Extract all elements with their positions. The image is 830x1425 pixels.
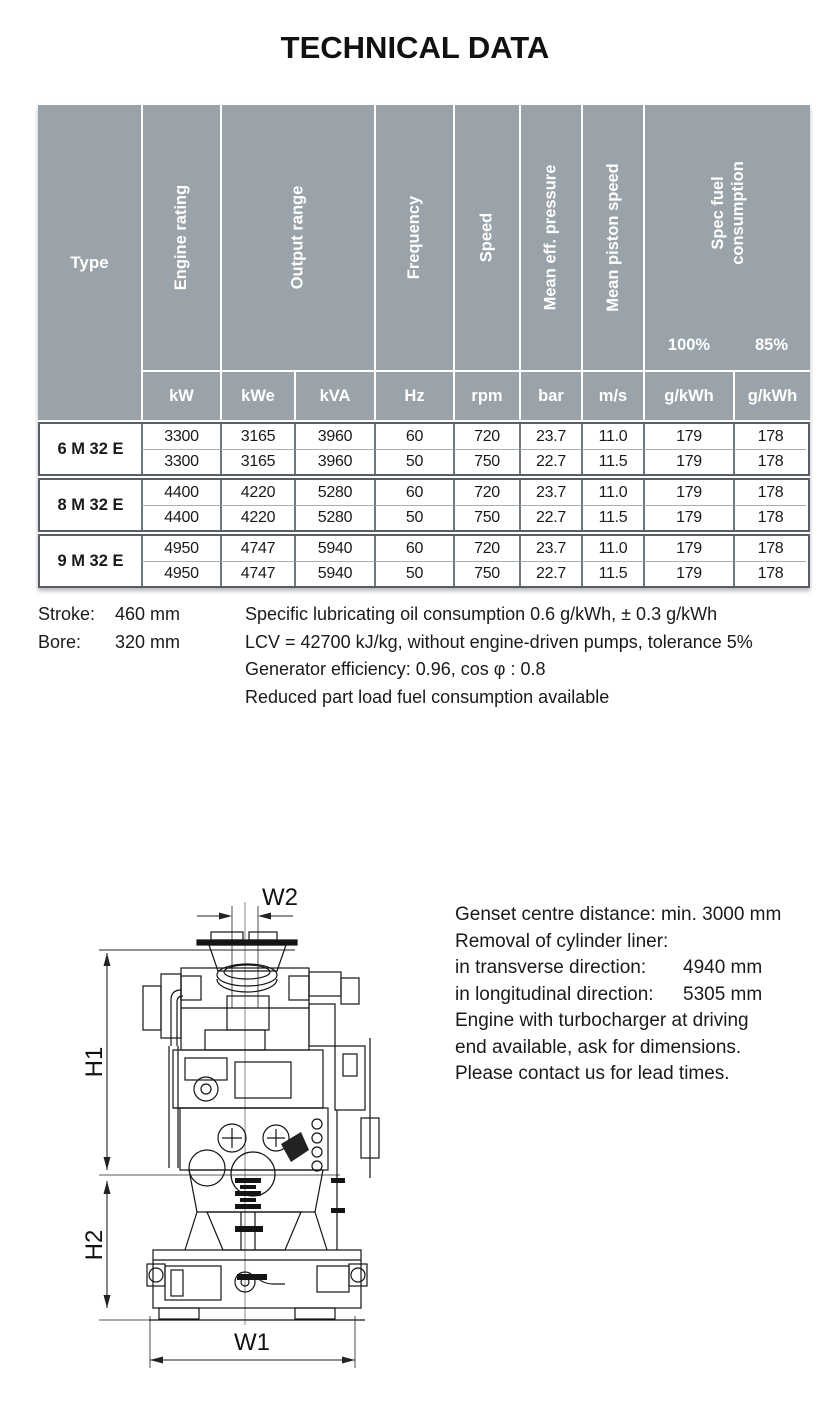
unit-bar: bar bbox=[519, 370, 581, 420]
value-cell: 3300 bbox=[141, 449, 220, 474]
value-cell: 50 bbox=[374, 561, 453, 586]
table-header: Type Engine rating Output range Frequenc… bbox=[38, 105, 810, 420]
column-header-frequency: Frequency bbox=[374, 105, 453, 370]
dimension-label-h2: H2 bbox=[85, 1230, 108, 1261]
note-line: Reduced part load fuel consumption avail… bbox=[245, 684, 753, 712]
value-cell: 720 bbox=[453, 480, 519, 505]
value-cell: 720 bbox=[453, 424, 519, 449]
unit-rpm: rpm bbox=[453, 370, 519, 420]
value-cell: 60 bbox=[374, 480, 453, 505]
value-cell: 22.7 bbox=[519, 449, 581, 474]
value-cell: 11.0 bbox=[581, 536, 643, 561]
unit-ms: m/s bbox=[581, 370, 643, 420]
value-cell: 4950 bbox=[141, 561, 220, 586]
value-cell: 4400 bbox=[141, 505, 220, 530]
value-cell: 179 bbox=[643, 536, 733, 561]
type-header-label: Type bbox=[70, 253, 108, 273]
value-cell: 178 bbox=[733, 424, 806, 449]
dimension-notes: Genset centre distance: min. 3000 mm Rem… bbox=[455, 902, 827, 1088]
value-cell: 4747 bbox=[220, 536, 294, 561]
bore-label: Bore: bbox=[38, 629, 115, 657]
mean-eff-pressure-label: Mean eff. pressure bbox=[542, 165, 561, 311]
engine-drawing: H1 H2 W2 W1 bbox=[85, 878, 465, 1398]
value-cell: 11.5 bbox=[581, 449, 643, 474]
turbo-line: end available, ask for dimensions. bbox=[455, 1035, 827, 1062]
column-header-mean-piston-speed: Mean piston speed bbox=[581, 105, 643, 370]
bore-stroke-block: Stroke:460 mm Bore:320 mm bbox=[38, 601, 180, 656]
value-cell: 179 bbox=[643, 561, 733, 586]
engine-type: 6 M 32 E bbox=[40, 424, 141, 474]
column-header-output-range: Output range bbox=[220, 105, 374, 370]
value-cell: 179 bbox=[643, 480, 733, 505]
unit-kwe: kWe bbox=[220, 370, 294, 420]
value-cell: 11.0 bbox=[581, 424, 643, 449]
consumption-notes: Specific lubricating oil consumption 0.6… bbox=[245, 601, 753, 711]
dimension-label-h1: H1 bbox=[85, 1047, 108, 1078]
value-cell: 3165 bbox=[220, 449, 294, 474]
value-cell: 178 bbox=[733, 480, 806, 505]
load-point-85: 85% bbox=[733, 320, 810, 370]
removal-value: 5305 mm bbox=[683, 982, 762, 1009]
value-cell: 3165 bbox=[220, 424, 294, 449]
engine-outline bbox=[143, 932, 379, 1320]
value-cell: 22.7 bbox=[519, 561, 581, 586]
frequency-label: Frequency bbox=[405, 196, 424, 279]
removal-row-longitudinal: in longitudinal direction: 5305 mm bbox=[455, 982, 827, 1009]
column-header-speed: Speed bbox=[453, 105, 519, 370]
removal-row-transverse: in transverse direction: 4940 mm bbox=[455, 955, 827, 982]
value-cell: 11.5 bbox=[581, 505, 643, 530]
engine-rating-label: Engine rating bbox=[172, 185, 191, 290]
value-cell: 178 bbox=[733, 449, 806, 474]
technical-data-table: Type Engine rating Output range Frequenc… bbox=[38, 105, 810, 588]
engine-group-6m32e: 6 M 32 E 3300 3165 3960 60 720 23.7 11.0… bbox=[38, 422, 810, 476]
lead-times-note: Please contact us for lead times. bbox=[455, 1061, 827, 1088]
engine-type: 9 M 32 E bbox=[40, 536, 141, 586]
unit-gkwh-100: g/kWh bbox=[643, 370, 733, 420]
value-cell: 179 bbox=[643, 505, 733, 530]
cylinder-liner-removal: Removal of cylinder liner: in transverse… bbox=[455, 929, 827, 1009]
mean-piston-speed-label: Mean piston speed bbox=[604, 163, 623, 312]
load-point-100: 100% bbox=[643, 320, 733, 370]
removal-value: 4940 mm bbox=[683, 955, 762, 982]
value-cell: 4220 bbox=[220, 480, 294, 505]
engine-group-8m32e: 8 M 32 E 4400 4220 5280 60 720 23.7 11.0… bbox=[38, 478, 810, 532]
dimension-label-w2: W2 bbox=[262, 884, 298, 911]
value-cell: 4220 bbox=[220, 505, 294, 530]
value-cell: 11.0 bbox=[581, 480, 643, 505]
value-cell: 179 bbox=[643, 424, 733, 449]
value-cell: 4400 bbox=[141, 480, 220, 505]
note-line: Generator efficiency: 0.96, cos φ : 0.8 bbox=[245, 656, 753, 684]
value-cell: 3960 bbox=[294, 424, 374, 449]
value-cell: 750 bbox=[453, 449, 519, 474]
value-cell: 178 bbox=[733, 561, 806, 586]
value-cell: 11.5 bbox=[581, 561, 643, 586]
spec-fuel-label: Spec fuel consumption bbox=[707, 161, 747, 265]
engine-type: 8 M 32 E bbox=[40, 480, 141, 530]
unit-kva: kVA bbox=[294, 370, 374, 420]
column-header-mean-eff-pressure: Mean eff. pressure bbox=[519, 105, 581, 370]
removal-label: in longitudinal direction: bbox=[455, 984, 654, 1005]
stroke-label: Stroke: bbox=[38, 601, 115, 629]
note-line: LCV = 42700 kJ/kg, without engine-driven… bbox=[245, 629, 753, 657]
unit-gkwh-85: g/kWh bbox=[733, 370, 810, 420]
value-cell: 3960 bbox=[294, 449, 374, 474]
value-cell: 4950 bbox=[141, 536, 220, 561]
stroke-value: 460 mm bbox=[115, 604, 180, 624]
value-cell: 178 bbox=[733, 505, 806, 530]
value-cell: 179 bbox=[643, 449, 733, 474]
genset-distance-note: Genset centre distance: min. 3000 mm bbox=[455, 902, 827, 929]
value-cell: 4747 bbox=[220, 561, 294, 586]
value-cell: 720 bbox=[453, 536, 519, 561]
spec-fuel-line2: consumption bbox=[727, 161, 747, 265]
turbo-line: Engine with turbocharger at driving bbox=[455, 1008, 827, 1035]
value-cell: 23.7 bbox=[519, 424, 581, 449]
page-title: TECHNICAL DATA bbox=[0, 30, 830, 66]
speed-label: Speed bbox=[478, 213, 497, 263]
column-header-spec-fuel-consumption: Spec fuel consumption bbox=[643, 105, 810, 320]
value-cell: 50 bbox=[374, 449, 453, 474]
value-cell: 750 bbox=[453, 561, 519, 586]
removal-label: in transverse direction: bbox=[455, 957, 646, 978]
value-cell: 3300 bbox=[141, 424, 220, 449]
value-cell: 5280 bbox=[294, 505, 374, 530]
value-cell: 5280 bbox=[294, 480, 374, 505]
stroke-row: Stroke:460 mm bbox=[38, 601, 180, 629]
value-cell: 23.7 bbox=[519, 480, 581, 505]
removal-title: Removal of cylinder liner: bbox=[455, 929, 827, 956]
note-line: Specific lubricating oil consumption 0.6… bbox=[245, 601, 753, 629]
engine-group-9m32e: 9 M 32 E 4950 4747 5940 60 720 23.7 11.0… bbox=[38, 534, 810, 588]
unit-hz: Hz bbox=[374, 370, 453, 420]
spec-fuel-line1: Spec fuel bbox=[707, 176, 727, 249]
dimension-label-w1: W1 bbox=[234, 1329, 270, 1356]
value-cell: 5940 bbox=[294, 561, 374, 586]
value-cell: 5940 bbox=[294, 536, 374, 561]
bore-value: 320 mm bbox=[115, 632, 180, 652]
column-header-type: Type bbox=[38, 105, 141, 420]
turbocharger-note: Engine with turbocharger at driving end … bbox=[455, 1008, 827, 1061]
value-cell: 22.7 bbox=[519, 505, 581, 530]
unit-kw: kW bbox=[141, 370, 220, 420]
value-cell: 60 bbox=[374, 424, 453, 449]
bore-row: Bore:320 mm bbox=[38, 629, 180, 657]
value-cell: 178 bbox=[733, 536, 806, 561]
value-cell: 50 bbox=[374, 505, 453, 530]
output-range-label: Output range bbox=[288, 186, 307, 290]
value-cell: 60 bbox=[374, 536, 453, 561]
value-cell: 23.7 bbox=[519, 536, 581, 561]
value-cell: 750 bbox=[453, 505, 519, 530]
column-header-engine-rating: Engine rating bbox=[141, 105, 220, 370]
